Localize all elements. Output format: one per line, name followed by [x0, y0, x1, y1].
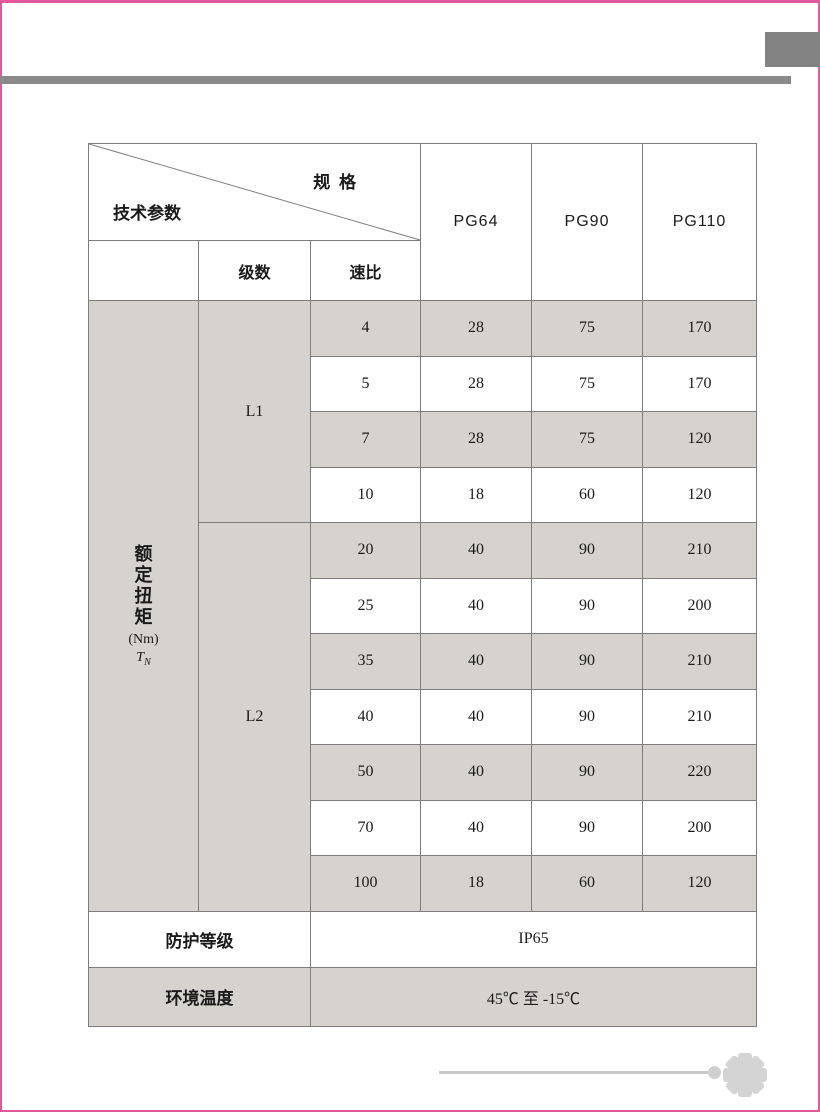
- pg110-value-cell: 120: [643, 467, 757, 523]
- ambient-temperature-value: 45℃ 至 -15℃: [311, 967, 757, 1026]
- ratio-cell: 10: [311, 467, 421, 523]
- table-row: 额定扭矩(Nm)TNL142875170: [89, 301, 757, 357]
- pg110-value-cell: 220: [643, 745, 757, 801]
- gear-icon: [720, 1050, 770, 1100]
- pg64-value-cell: 18: [421, 467, 532, 523]
- pg64-value-cell: 28: [421, 301, 532, 357]
- footer-rule-line: [439, 1071, 712, 1074]
- header-corner-block: [765, 32, 820, 67]
- table-header: 规 格 技术参数 PG64 PG90 PG110 级数 速比: [89, 144, 757, 301]
- pg90-value-cell: 90: [532, 745, 643, 801]
- ratio-cell: 7: [311, 412, 421, 468]
- pg110-value-cell: 170: [643, 356, 757, 412]
- torque-unit: (Nm): [89, 632, 198, 648]
- stage-group-cell-l1: L1: [199, 301, 311, 523]
- pg90-value-cell: 75: [532, 412, 643, 468]
- pg90-value-cell: 90: [532, 578, 643, 634]
- ratio-cell: 100: [311, 856, 421, 912]
- pg90-value-cell: 90: [532, 800, 643, 856]
- ratio-cell: 35: [311, 634, 421, 690]
- pg64-value-cell: 40: [421, 745, 532, 801]
- pg64-value-cell: 40: [421, 800, 532, 856]
- subheader-empty-cell: [89, 241, 199, 301]
- pg90-value-cell: 90: [532, 689, 643, 745]
- header-divider-bar: [0, 76, 791, 84]
- protection-class-value: IP65: [311, 911, 757, 967]
- pg64-value-cell: 40: [421, 689, 532, 745]
- spec-table: 规 格 技术参数 PG64 PG90 PG110 级数 速比 额定扭矩(Nm)T…: [88, 143, 757, 1027]
- table-footer: 防护等级 IP65 环境温度 45℃ 至 -15℃: [89, 911, 757, 1026]
- ratio-cell: 50: [311, 745, 421, 801]
- rated-torque-label-cell: 额定扭矩(Nm)TN: [89, 301, 199, 912]
- diagonal-line: [89, 144, 420, 240]
- pg110-value-cell: 210: [643, 689, 757, 745]
- ambient-temperature-label: 环境温度: [89, 967, 311, 1026]
- table-body: 额定扭矩(Nm)TNL14287517052875170728751201018…: [89, 301, 757, 912]
- pg64-value-cell: 18: [421, 856, 532, 912]
- pg64-value-cell: 28: [421, 356, 532, 412]
- ratio-cell: 4: [311, 301, 421, 357]
- pg110-value-cell: 210: [643, 634, 757, 690]
- parameter-axis-label: 技术参数: [113, 199, 181, 224]
- spec-axis-label: 规 格: [313, 168, 358, 193]
- pg90-value-cell: 75: [532, 301, 643, 357]
- pg110-value-cell: 200: [643, 578, 757, 634]
- pg64-value-cell: 40: [421, 578, 532, 634]
- ratio-cell: 25: [311, 578, 421, 634]
- subheader-stages: 级数: [199, 241, 311, 301]
- ratio-cell: 40: [311, 689, 421, 745]
- diagonal-header-cell: 规 格 技术参数: [89, 144, 421, 241]
- pg90-value-cell: 90: [532, 523, 643, 579]
- subheader-ratio: 速比: [311, 241, 421, 301]
- pg110-value-cell: 120: [643, 856, 757, 912]
- pg110-value-cell: 120: [643, 412, 757, 468]
- ratio-cell: 20: [311, 523, 421, 579]
- pg90-value-cell: 90: [532, 634, 643, 690]
- document-page: { "colors": { "accent_pink": "#e2589c", …: [0, 0, 820, 1112]
- pg110-value-cell: 210: [643, 523, 757, 579]
- pg90-value-cell: 60: [532, 856, 643, 912]
- torque-symbol: TN: [89, 650, 198, 668]
- protection-class-label: 防护等级: [89, 911, 311, 967]
- pg64-value-cell: 28: [421, 412, 532, 468]
- pg64-value-cell: 40: [421, 634, 532, 690]
- column-header-pg64: PG64: [421, 144, 532, 301]
- ratio-cell: 5: [311, 356, 421, 412]
- pg90-value-cell: 60: [532, 467, 643, 523]
- column-header-pg110: PG110: [643, 144, 757, 301]
- pg64-value-cell: 40: [421, 523, 532, 579]
- column-header-pg90: PG90: [532, 144, 643, 301]
- pg110-value-cell: 170: [643, 301, 757, 357]
- rated-torque-vertical-text: 额定扭矩: [133, 544, 155, 628]
- pg90-value-cell: 75: [532, 356, 643, 412]
- ratio-cell: 70: [311, 800, 421, 856]
- pg110-value-cell: 200: [643, 800, 757, 856]
- stage-group-cell-l2: L2: [199, 523, 311, 912]
